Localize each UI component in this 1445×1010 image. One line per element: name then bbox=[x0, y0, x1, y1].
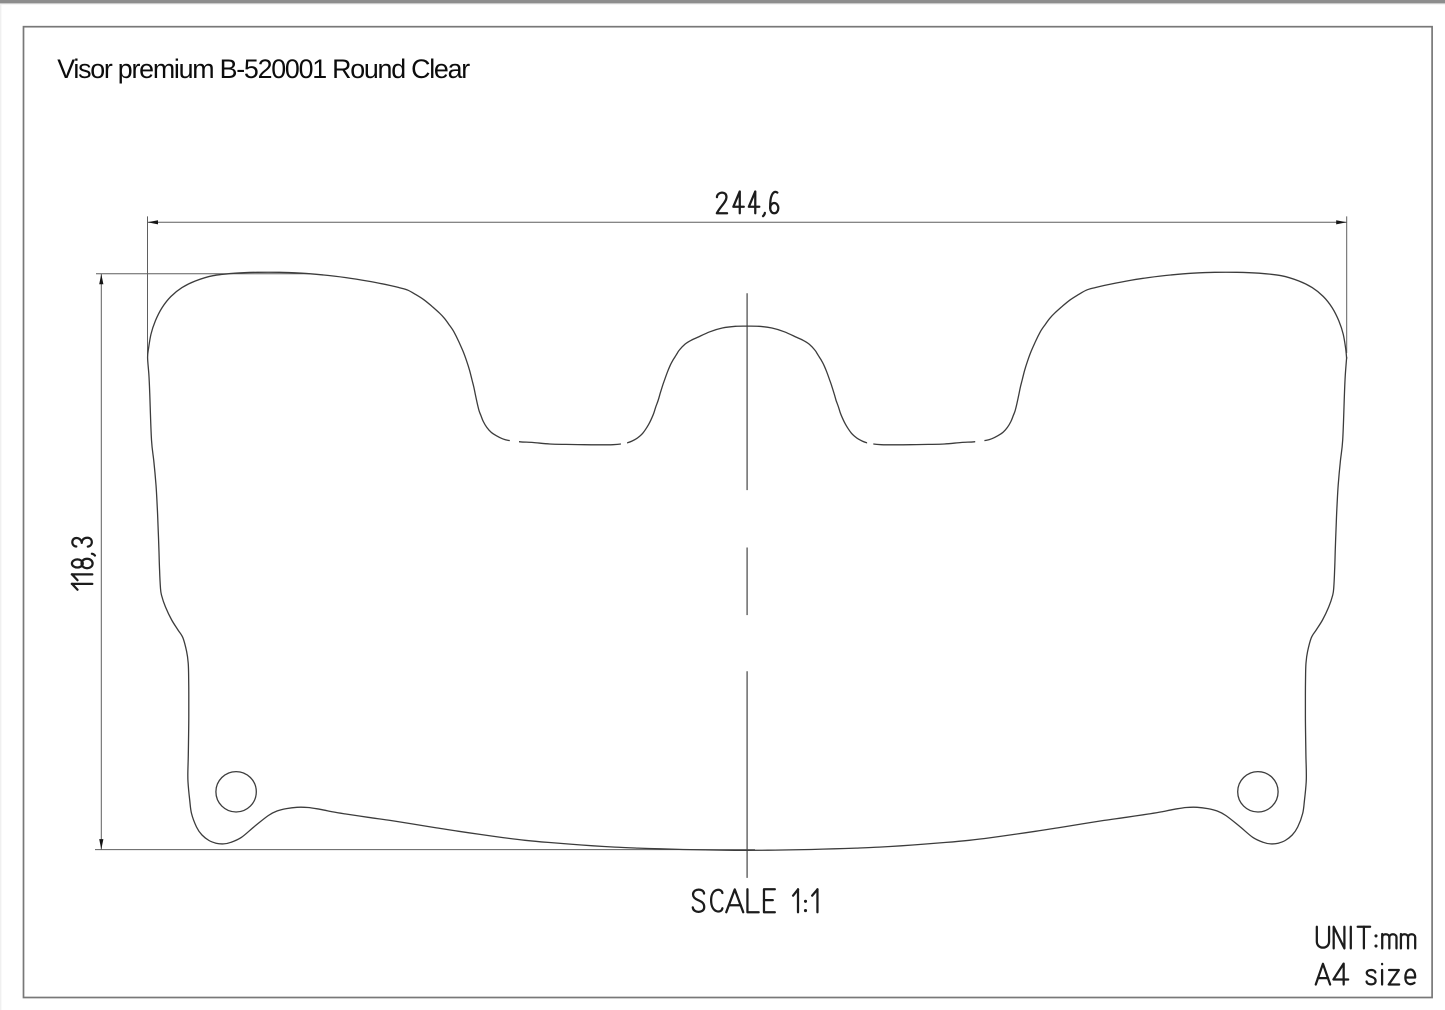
svg-text:Visor premium B-520001 Round C: Visor premium B-520001 Round Clear bbox=[57, 54, 470, 84]
